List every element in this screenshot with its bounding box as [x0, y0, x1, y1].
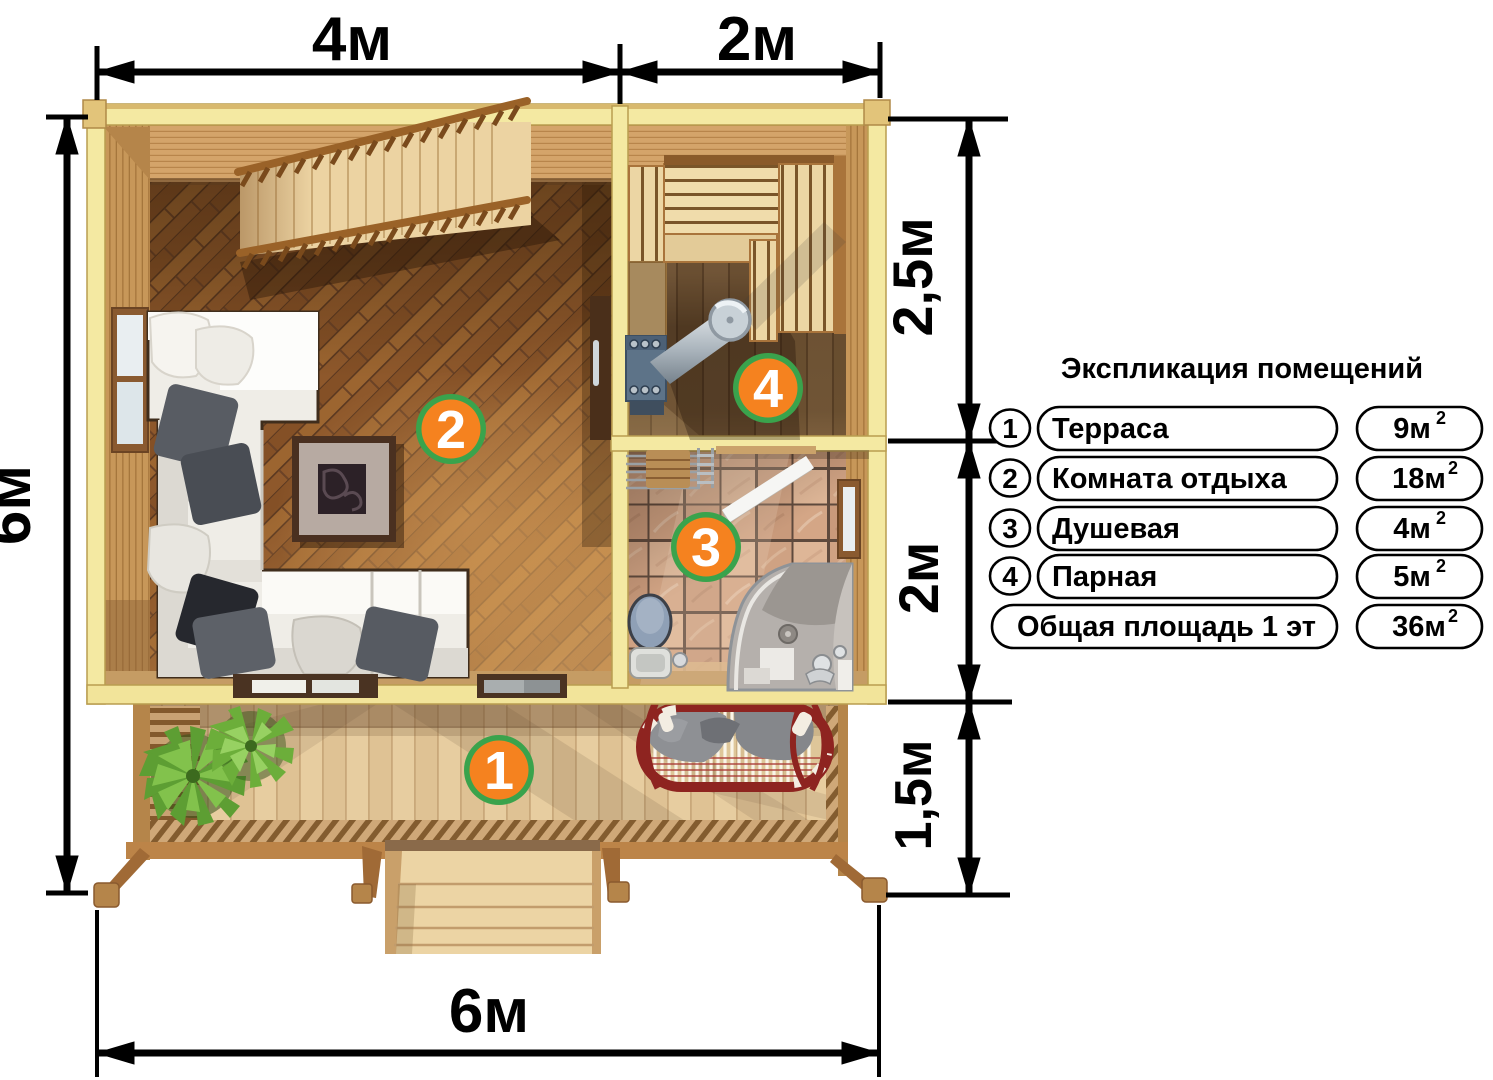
svg-text:4м: 4м [312, 5, 392, 74]
svg-text:4: 4 [1002, 561, 1018, 592]
svg-text:1: 1 [484, 741, 514, 801]
svg-text:Экспликация помещений: Экспликация помещений [1061, 353, 1423, 385]
svg-text:6м: 6м [449, 977, 529, 1046]
svg-text:2: 2 [1436, 508, 1446, 528]
svg-text:2: 2 [1436, 556, 1446, 576]
svg-text:18м: 18м [1392, 463, 1446, 495]
svg-text:3: 3 [1002, 513, 1018, 544]
svg-text:2,5м: 2,5м [881, 217, 944, 336]
svg-text:2: 2 [1448, 606, 1458, 626]
svg-text:36м: 36м [1392, 611, 1446, 643]
svg-text:2: 2 [1436, 408, 1446, 428]
svg-text:2м: 2м [717, 5, 797, 74]
svg-text:2: 2 [1002, 463, 1018, 494]
svg-text:9м: 9м [1393, 413, 1431, 445]
svg-text:5м: 5м [1393, 561, 1431, 593]
svg-text:Парная: Парная [1052, 561, 1157, 593]
svg-text:Терраса: Терраса [1052, 413, 1169, 445]
svg-text:1: 1 [1002, 413, 1018, 444]
svg-text:4: 4 [753, 359, 783, 419]
svg-text:Комната отдыха: Комната отдыха [1052, 463, 1288, 495]
svg-text:3: 3 [691, 518, 721, 578]
svg-text:2: 2 [1448, 458, 1458, 478]
svg-text:1,5м: 1,5м [885, 740, 943, 851]
svg-text:Душевая: Душевая [1052, 513, 1180, 545]
svg-text:Общая площадь 1 эт: Общая площадь 1 эт [1017, 611, 1316, 643]
svg-text:2: 2 [436, 400, 466, 460]
svg-text:6м: 6м [0, 465, 44, 545]
svg-text:2м: 2м [887, 542, 950, 615]
svg-text:4м: 4м [1393, 513, 1431, 545]
